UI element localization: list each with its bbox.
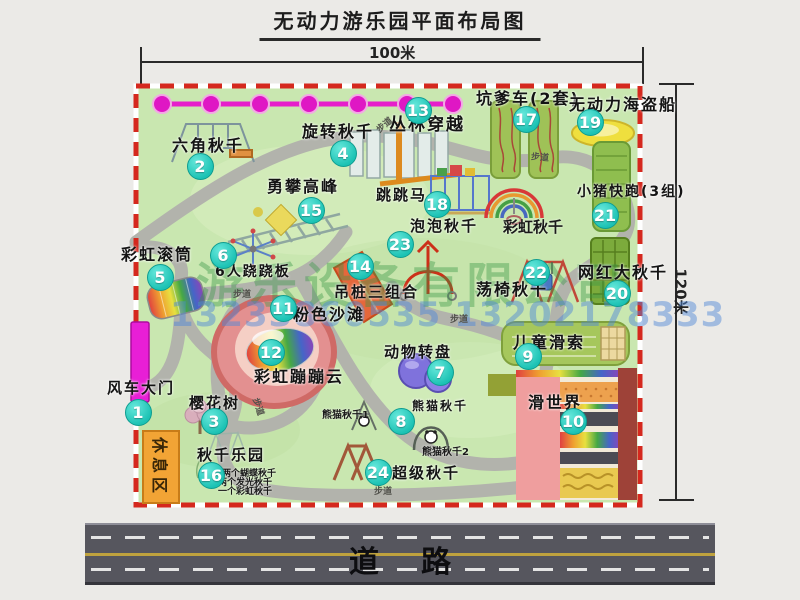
attraction-label-16: 秋千乐园: [197, 447, 265, 464]
attraction-marker-11: 11: [270, 295, 297, 322]
attraction-label-15: 勇攀高峰: [267, 178, 339, 196]
page-root: 无动力游乐园平面布局图 100米 120米: [0, 0, 800, 600]
attraction-marker-14: 14: [347, 253, 374, 280]
attraction-marker-12: 12: [258, 339, 285, 366]
walkway-label-2: 步道: [530, 149, 549, 164]
attraction-label-2: 六角秋千: [172, 137, 244, 155]
attraction-label-24: 超级秋千: [392, 465, 460, 482]
attraction-marker-7: 7: [427, 359, 454, 386]
attraction-marker-3: 3: [201, 408, 228, 435]
attraction-marker-4: 4: [330, 140, 357, 167]
walkway-label-3: 步道: [233, 287, 251, 300]
attraction-marker-6: 6: [210, 242, 237, 269]
attraction-label-4: 旋转秋千: [302, 123, 374, 141]
attraction-marker-22: 22: [523, 259, 550, 286]
attraction-label-5: 彩虹滚筒: [121, 246, 193, 264]
attraction-marker-10: 10: [560, 408, 587, 435]
attraction-label-21: 小猪快跑(3组): [577, 185, 686, 200]
attraction-marker-19: 19: [577, 109, 604, 136]
annotation-label-1: 彩虹秋千: [503, 216, 563, 237]
walkway-label-5: 步道: [374, 484, 392, 497]
attraction-label-11: 粉色沙滩: [293, 306, 365, 324]
attraction-marker-13: 13: [405, 97, 432, 124]
attraction-label-20: 网红大秋千: [578, 264, 668, 282]
road: 道路: [85, 523, 715, 585]
attraction-marker-17: 17: [513, 106, 540, 133]
attraction-label-12: 彩虹蹦蹦云: [254, 368, 344, 386]
attraction-label-1: 风车大门: [107, 380, 175, 397]
dimension-height-label: 120米: [671, 268, 692, 314]
annotation-label-3: 熊猫秋千2: [422, 443, 469, 458]
attraction-label-8: 熊猫秋千: [412, 400, 468, 413]
attraction-label-14: 吊桩三组合: [334, 284, 419, 301]
attraction-label-17: 坑爹车(2套): [476, 90, 580, 108]
attraction-label-7: 动物转盘: [384, 344, 452, 361]
annotation-label-6: 一个彩虹秋千: [218, 484, 272, 497]
attraction-marker-5: 5: [147, 264, 174, 291]
attraction-marker-8: 8: [388, 408, 415, 435]
road-label: 道路: [85, 537, 715, 581]
attraction-marker-16: 16: [198, 462, 225, 489]
walkway-label-4: 步道: [450, 312, 468, 325]
annotation-label-2: 熊猫秋千1: [322, 406, 369, 421]
attraction-marker-1: 1: [125, 399, 152, 426]
rest-area-label: 休息区: [149, 437, 173, 497]
attraction-label-18: 跳跳马: [376, 187, 427, 204]
attraction-marker-18: 18: [424, 191, 451, 218]
attraction-marker-20: 20: [604, 280, 631, 307]
attraction-marker-23: 23: [387, 231, 414, 258]
attraction-marker-24: 24: [365, 459, 392, 486]
page-title: 无动力游乐园平面布局图: [260, 5, 541, 41]
dimension-width-label: 100米: [369, 42, 415, 63]
attraction-marker-2: 2: [187, 153, 214, 180]
attraction-marker-15: 15: [298, 197, 325, 224]
attraction-marker-21: 21: [592, 202, 619, 229]
attraction-marker-9: 9: [515, 343, 542, 370]
attraction-label-23: 泡泡秋千: [410, 218, 478, 235]
